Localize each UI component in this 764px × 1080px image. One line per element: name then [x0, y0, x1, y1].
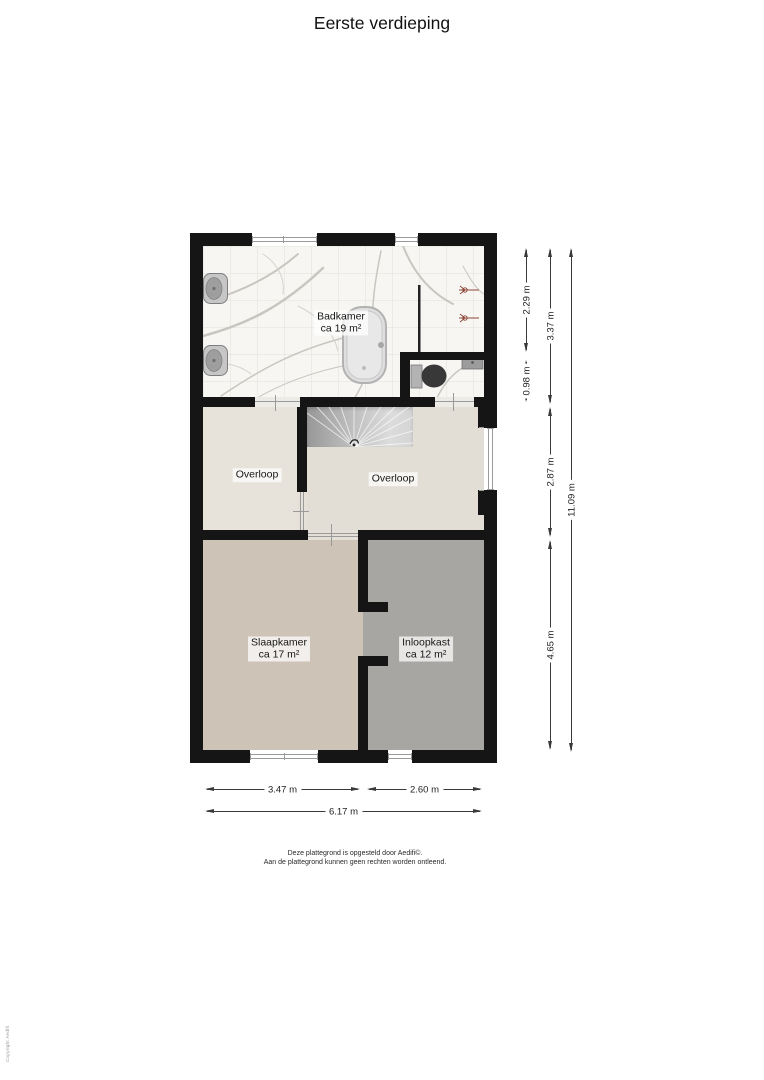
wall-segment — [190, 246, 203, 750]
disclaimer-line2: Aan de plattegrond kunnen geen rechten w… — [155, 858, 555, 867]
wall-segment — [190, 750, 250, 763]
wall-segment — [484, 490, 497, 750]
door-swing — [275, 395, 276, 411]
wall-segment — [318, 750, 388, 763]
room-label-slaapkamer: Slaapkamerca 17 m² — [248, 637, 310, 662]
door-opening — [308, 530, 358, 540]
dimension-height-total: 11.09 m — [566, 248, 578, 752]
dimension-width-total: 6.17 m — [205, 806, 482, 818]
floorplan-page: Eerste verdieping — [0, 0, 764, 1080]
window-reveal — [479, 490, 484, 491]
window — [388, 750, 412, 763]
wall-segment — [484, 246, 497, 428]
wall-segment — [300, 397, 435, 407]
toilet-icon — [411, 365, 447, 389]
window — [252, 233, 317, 246]
dimension-closet-width: 2.60 m — [367, 784, 482, 796]
room-label-overloop-right: Overloop — [369, 472, 418, 486]
disclaimer: Deze plattegrond is opgesteld door Aedif… — [155, 849, 555, 867]
sink-icon — [204, 346, 228, 376]
wc-wall — [400, 352, 410, 407]
stairs-icon — [307, 407, 413, 447]
wall-segment — [203, 397, 255, 407]
shower-partition — [418, 285, 421, 352]
wall-segment — [203, 530, 308, 540]
door-opening — [255, 397, 300, 407]
landing-left-floor — [203, 397, 297, 530]
wall-segment — [412, 750, 497, 763]
dimension-bath-top: 2.29 m — [521, 248, 533, 352]
wall-segment — [358, 656, 388, 666]
wall-segment — [478, 405, 484, 428]
dimension-bedroom-width: 3.47 m — [205, 784, 360, 796]
door-swing — [293, 511, 309, 512]
door-opening — [435, 397, 474, 407]
wall-segment — [358, 666, 368, 750]
window — [484, 428, 497, 490]
wall-segment — [190, 233, 252, 246]
wall-segment — [358, 530, 484, 540]
disclaimer-line1: Deze plattegrond is opgesteld door Aedif… — [155, 849, 555, 858]
wall-segment — [297, 397, 307, 492]
dimension-bedroom: 4.65 m — [545, 540, 557, 750]
wc-wall — [400, 352, 484, 360]
window — [395, 233, 418, 246]
room-label-overloop-left: Overloop — [233, 468, 282, 482]
room-label-inloopkast: Inloopkastca 12 m² — [399, 637, 453, 662]
faucet-icon — [459, 314, 479, 322]
wall-segment — [474, 397, 484, 407]
dimension-wc: 0.98 m — [521, 360, 533, 402]
wall-segment — [358, 602, 388, 612]
door-swing — [331, 524, 332, 546]
dimension-bath-full: 3.37 m — [545, 248, 557, 404]
door-swing — [453, 393, 454, 411]
room-label-badkamer: Badkamerca 19 m² — [314, 311, 368, 336]
wall-segment — [478, 490, 484, 515]
wall-segment — [317, 233, 395, 246]
wall-segment — [418, 233, 497, 246]
window — [250, 750, 318, 763]
window-reveal — [479, 427, 484, 428]
sink-icon — [204, 274, 228, 304]
page-title: Eerste verdieping — [0, 13, 764, 34]
dimension-landing: 2.87 m — [545, 407, 557, 537]
copyright-text: Copyright Aedifi — [5, 1026, 10, 1062]
